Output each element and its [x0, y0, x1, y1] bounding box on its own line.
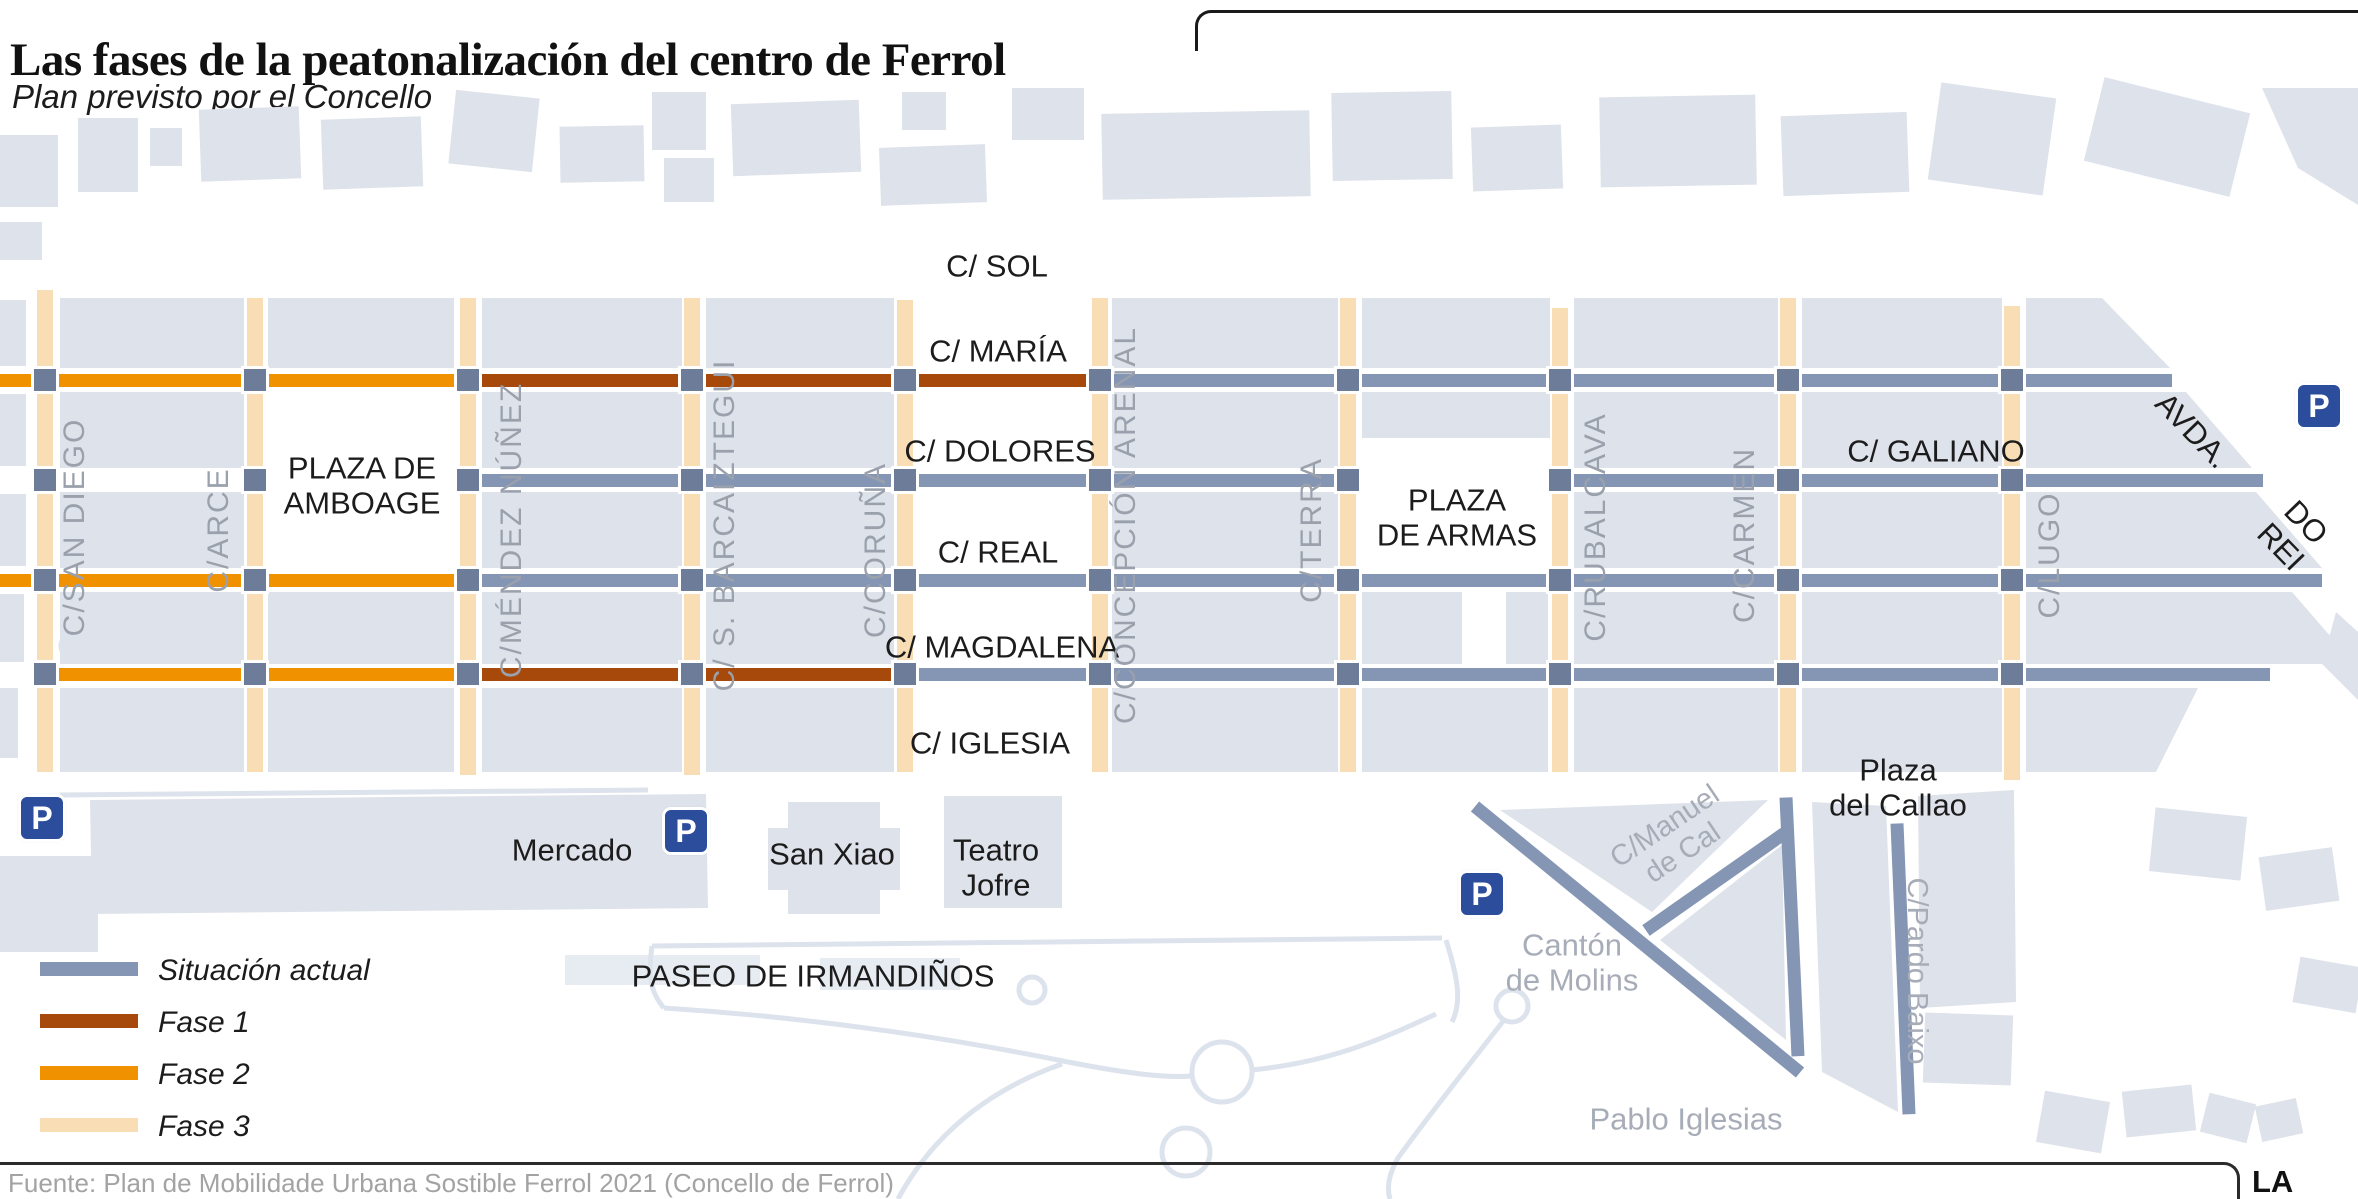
intersection-square — [681, 569, 703, 591]
intersection-square — [1777, 469, 1799, 491]
ferrol-street-map: C/ SOLC/ MARÍAC/ DOLORESC/ REALC/ MAGDAL… — [0, 0, 2358, 1199]
label-rubalcava: C/RUBALCAVA — [1579, 412, 1613, 641]
label-mercado: Mercado — [512, 834, 633, 869]
parking-icon: P — [2295, 382, 2343, 430]
intersection-square — [1337, 569, 1359, 591]
label-arce: C/ARCE — [202, 467, 236, 592]
source-credit: Fuente: Plan de Mobilidade Urbana Sostib… — [8, 1168, 894, 1199]
label-c-dolores: C/ DOLORES — [904, 435, 1095, 470]
intersection-square — [894, 469, 916, 491]
parking-icon: P — [18, 794, 66, 842]
intersection-square — [1337, 369, 1359, 391]
intersection-square — [1777, 663, 1799, 685]
intersection-square — [1549, 469, 1571, 491]
intersection-square — [894, 663, 916, 685]
intersection-square — [34, 569, 56, 591]
intersection-square — [1337, 663, 1359, 685]
street-segment-maria-fase2 — [0, 374, 466, 387]
intersection-square — [681, 469, 703, 491]
label-coruna: C/CORUÑA — [859, 462, 893, 638]
parking-icon: P — [662, 807, 710, 855]
intersection-square — [457, 469, 479, 491]
intersection-square — [34, 663, 56, 685]
label-san-diego: C/SAN DIEGO — [58, 418, 92, 637]
intersection-square — [1777, 569, 1799, 591]
label-mendez-nunez: C/MÉNDEZ NÚÑEZ — [495, 382, 529, 678]
intersection-square — [1089, 469, 1111, 491]
intersection-square — [1337, 469, 1359, 491]
label-san-xiao: San Xiao — [769, 838, 895, 873]
legend-label-fase-3: Fase 3 — [158, 1110, 250, 1144]
label-teatro-jofre: Teatro Jofre — [953, 833, 1039, 902]
label-paseo-irmandinos: PASEO DE IRMANDIÑOS — [632, 960, 995, 995]
intersection-square — [1089, 369, 1111, 391]
label-c-magdalena: C/ MAGDALENA — [885, 631, 1119, 666]
label-lugo: C/LUGO — [2033, 491, 2067, 618]
intersection-square — [2001, 663, 2023, 685]
label-c-galiano: C/ GALIANO — [1847, 435, 2024, 470]
label-barcaiztegui: C/ S. BARCAIZTEGUI — [708, 359, 742, 692]
intersection-square — [244, 569, 266, 591]
legend-label-fase-2: Fase 2 — [158, 1058, 250, 1092]
intersection-square — [1549, 663, 1571, 685]
intersection-square — [244, 469, 266, 491]
street-segment-maria-fase1 — [466, 374, 1100, 387]
intersection-square — [2001, 569, 2023, 591]
label-plaza-callao: Plaza del Callao — [1829, 753, 1967, 822]
legend-swatch-fase-3 — [40, 1118, 138, 1132]
intersection-square — [457, 663, 479, 685]
street-segment-galiano-actual — [1560, 474, 2263, 487]
label-canton-molins: Cantón de Molins — [1506, 928, 1639, 997]
intersection-square — [1089, 663, 1111, 685]
intersection-square — [244, 369, 266, 391]
label-terra: C/TERRA — [1295, 457, 1329, 603]
intersection-square — [1549, 369, 1571, 391]
label-c-maria: C/ MARÍA — [929, 335, 1067, 370]
label-c-iglesia: C/ IGLESIA — [910, 727, 1070, 762]
intersection-square — [457, 569, 479, 591]
intersection-square — [34, 369, 56, 391]
parking-icon: P — [1458, 870, 1506, 918]
label-plaza-amboage: PLAZA DE AMBOAGE — [284, 451, 441, 520]
label-pardo-baixo: C/Pardo Baixo — [1901, 878, 1933, 1065]
intersection-square — [681, 663, 703, 685]
intersection-square — [1089, 569, 1111, 591]
intersection-square — [1549, 569, 1571, 591]
intersection-square — [2001, 469, 2023, 491]
legend-label-fase-1: Fase 1 — [158, 1006, 250, 1040]
label-plaza-armas: PLAZA DE ARMAS — [1377, 483, 1537, 552]
intersection-square — [2001, 369, 2023, 391]
legend-label-situacion-actual: Situación actual — [158, 954, 370, 988]
intersection-square — [681, 369, 703, 391]
infographic-page: Las fases de la peatonalización del cent… — [0, 0, 2358, 1199]
intersection-square — [244, 663, 266, 685]
label-carmen: C/CARMEN — [1728, 447, 1762, 623]
legend-swatch-fase-1 — [40, 1014, 138, 1028]
street-vertical-san-diego — [37, 290, 53, 772]
label-c-sol: C/ SOL — [946, 250, 1048, 285]
label-pablo-iglesias: Pablo Iglesias — [1589, 1103, 1782, 1138]
legend-swatch-fase-2 — [40, 1066, 138, 1080]
intersection-square — [1777, 369, 1799, 391]
brand-logo: LA VOZ — [2252, 1164, 2358, 1199]
label-c-real: C/ REAL — [938, 536, 1059, 571]
intersection-square — [457, 369, 479, 391]
intersection-square — [894, 369, 916, 391]
intersection-square — [894, 569, 916, 591]
label-concepcion-arenal: C/CONCEPCIÓN ARENAL — [1109, 326, 1143, 724]
legend-swatch-situacion-actual — [40, 962, 138, 976]
intersection-square — [34, 469, 56, 491]
